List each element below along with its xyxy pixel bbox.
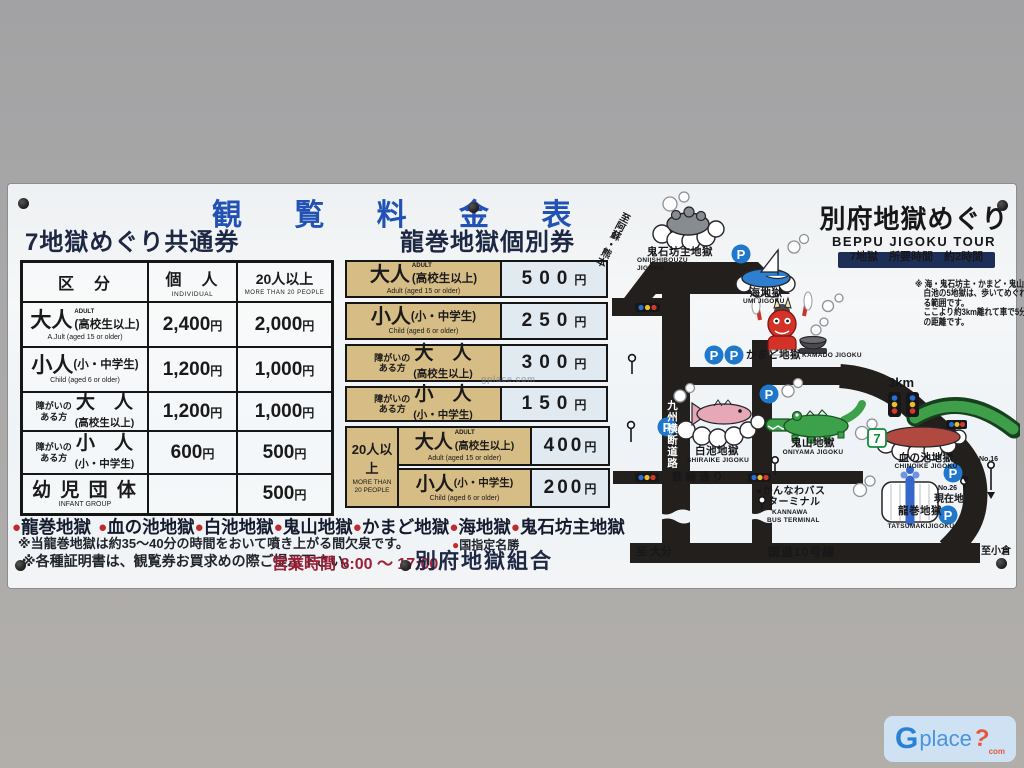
price-cell: 500円: [502, 260, 608, 298]
svg-text:P: P: [710, 348, 719, 363]
fee-group-20-or-more: 20人以上 MORE THAN20 PEOPLE 大人 ADULT(高校生以上)…: [345, 426, 610, 508]
current-location-label: 現在地: [934, 495, 964, 506]
header-individual-en: INDIVIDUAL: [172, 291, 213, 298]
map-subtitle: BEPPU JIGOKU TOUR: [808, 235, 1020, 249]
common-ticket-fee-table: 区 分 個 人 INDIVIDUAL 20人以上 MORE THAN 20 PE…: [20, 260, 334, 516]
fee-row-adult: 大人 ADULT(高校生以上) Adult (aged 15 or older)…: [345, 260, 610, 298]
price-cell: 200円: [532, 468, 610, 508]
seven-eleven-icon: 7: [868, 429, 886, 447]
header-group-en: MORE THAN 20 PEOPLE: [245, 290, 324, 296]
price-group: 500円: [263, 483, 307, 505]
header-category: 区 分: [58, 270, 112, 294]
parking-icon: P: [732, 245, 751, 264]
price-individual: 1,200円: [163, 401, 223, 423]
row-label: 小人: [31, 355, 73, 376]
row-label: 大人: [30, 310, 72, 331]
to-oita-label: 至 大分: [636, 547, 672, 559]
map-walking-note: ※ 海・鬼石坊主・かまど・鬼山・ 白池の5地獄は、歩いてめぐれ る範囲です。 こ…: [915, 280, 1024, 327]
bus-stop-no16-label: No.16: [979, 456, 998, 463]
distance-label: 3km: [888, 376, 914, 390]
kannawa-street-label: 鉄輪通り: [672, 472, 726, 483]
price-cell: 150円: [502, 386, 608, 422]
traffic-light-icon: [946, 420, 967, 429]
table-row-adult: 大人 ADULT(高校生以上) A.Jult (aged 15 or older…: [23, 301, 331, 346]
shiraike-fish-icon: [677, 400, 765, 447]
beppu-jigoku-map: 7 P P P P P P P 別府地獄めぐり BEPPU JIGOKU TOU…: [610, 190, 1020, 590]
screw-icon: [997, 200, 1008, 211]
row-label: 幼 児 団 体: [32, 481, 138, 500]
screw-icon: [18, 198, 29, 209]
left-section-heading: 7地獄めぐり共通券: [25, 222, 239, 257]
table-row-disabled-child: 障がいのある方 小 人(小・中学生) 600円 500円: [23, 430, 331, 473]
screw-icon: [468, 202, 479, 213]
price-cell: 400円: [532, 426, 610, 466]
bullet-icon: ●: [511, 519, 520, 536]
association-name: 別府地獄組合: [415, 545, 553, 575]
map-duration-badge: 7地獄 所要時間 約2時間: [838, 252, 995, 268]
shiraike-label: 白池地獄: [672, 446, 762, 457]
parking-icon: P: [705, 346, 724, 365]
svg-text:7: 7: [873, 431, 880, 446]
arrow-down-icon: [987, 492, 995, 499]
header-individual: 個 人: [165, 266, 219, 290]
table-row-child: 小人 (小・中学生) Child (aged 6 or older) 1,200…: [23, 346, 331, 391]
price-group: 2,000円: [255, 314, 315, 336]
price-group: 1,000円: [255, 359, 315, 381]
price-individual: 2,400円: [163, 314, 223, 336]
sign-board: 観 覧 料 金 表 7地獄めぐり共通券 龍巻地獄個別券 区 分 個 人 INDI…: [8, 184, 1016, 588]
kannawa-bus-label: ●かんなわバス: [756, 487, 826, 498]
traffic-light-icon: [748, 473, 771, 482]
table-header-row: 区 分 個 人 INDIVIDUAL 20人以上 MORE THAN 20 PE…: [23, 263, 331, 301]
route10-label: 国道10号線: [768, 546, 835, 559]
fee-row-disabled-child: 障がいのある方 小 人(小・中学生) 150円: [345, 386, 610, 422]
map-title: 別府地獄めぐり: [808, 206, 1020, 233]
parking-icon: P: [760, 385, 779, 404]
traffic-light-icon: [888, 392, 901, 417]
tatsumaki-ticket-fee-table: 大人 ADULT(高校生以上) Adult (aged 15 or older)…: [345, 260, 610, 508]
price-group: 1,000円: [255, 401, 315, 423]
svg-text:P: P: [730, 348, 739, 363]
fee-row-group-child: 小人 (小・中学生) Child (aged 6 or older) 200円: [399, 468, 610, 508]
price-individual: 600円: [171, 442, 215, 464]
onishibouzu-icon: [653, 207, 724, 250]
screw-icon: [400, 560, 411, 571]
row-label: 小 人: [76, 433, 133, 454]
photo-of-fee-sign: 観 覧 料 金 表 7地獄めぐり共通券 龍巻地獄個別券 区 分 個 人 INDI…: [0, 0, 1024, 768]
screw-icon: [15, 560, 26, 571]
fee-row-child: 小人 (小・中学生) Child (aged 6 or older) 250円: [345, 302, 610, 340]
bus-stop-no26-label: No.26: [938, 485, 957, 492]
row-label: 大 人: [76, 393, 133, 413]
svg-text:P: P: [737, 247, 746, 262]
header-group: 20人以上: [256, 269, 314, 289]
middle-section-heading: 龍巻地獄個別券: [400, 222, 575, 257]
price-group: 500円: [263, 442, 307, 464]
parking-icon: P: [725, 346, 744, 365]
tatsumaki-label: 龍巻地獄: [887, 506, 953, 517]
traffic-light-icon: [906, 392, 919, 417]
watermark-text: gplace.com: [481, 374, 536, 384]
svg-text:P: P: [765, 387, 774, 402]
kamado-label: かまど地獄: [746, 350, 801, 361]
traffic-light-icon: [635, 473, 659, 482]
business-hours: 営業時間 8:00 〜 17:00: [272, 550, 438, 574]
traffic-light-icon: [635, 303, 660, 312]
table-row-infant-group: 幼 児 団 体 INFANT GROUP 500円: [23, 473, 331, 513]
fee-row-disabled-adult: 障がいのある方 大 人(高校生以上) 300円: [345, 344, 610, 382]
oniyama-label: 鬼山地獄: [770, 438, 856, 449]
fee-row-group-adult: 大人 ADULT(高校生以上) Adult (aged 15 or older)…: [399, 426, 610, 466]
screw-icon: [996, 558, 1007, 569]
gplace-watermark-logo: Gplace?com: [884, 716, 1016, 762]
price-individual-empty: [149, 475, 238, 513]
price-individual: 1,200円: [163, 359, 223, 381]
to-kokura-label: 至小倉: [981, 547, 1011, 558]
table-row-disabled-adult: 障がいのある方 大 人(高校生以上) 1,200円 1,000円: [23, 391, 331, 430]
price-cell: 250円: [502, 302, 608, 340]
